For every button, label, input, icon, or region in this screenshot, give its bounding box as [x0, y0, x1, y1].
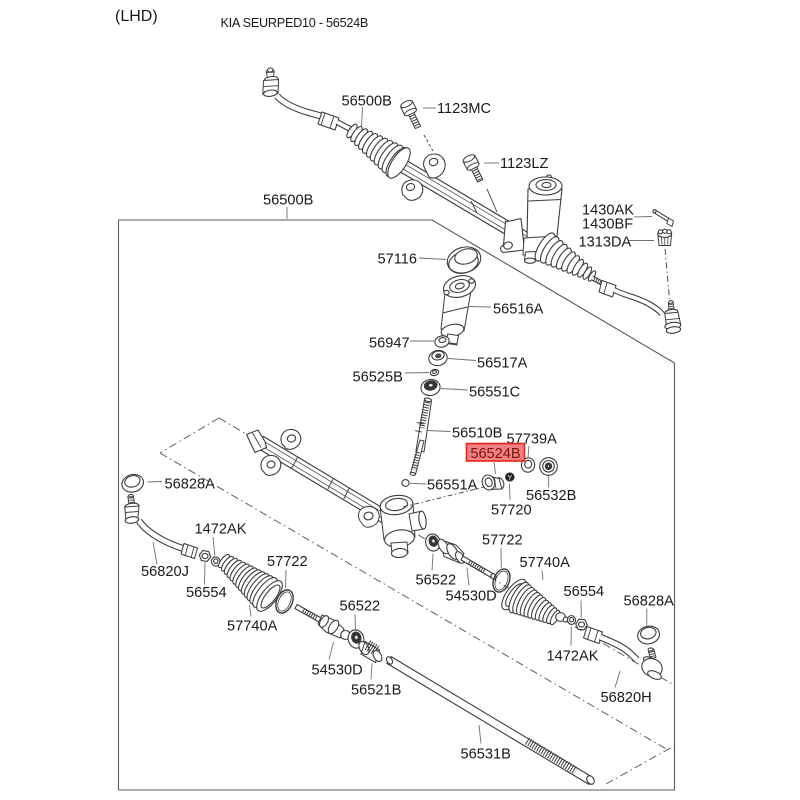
svg-text:57116: 57116 — [378, 252, 418, 268]
svg-text:57740A: 57740A — [227, 619, 278, 635]
svg-text:56524B: 56524B — [470, 446, 520, 462]
svg-text:56554: 56554 — [564, 584, 605, 600]
svg-text:57722: 57722 — [482, 533, 523, 549]
svg-text:1472AK: 1472AK — [195, 522, 247, 538]
svg-text:56522: 56522 — [416, 572, 457, 588]
svg-text:56510B: 56510B — [452, 426, 502, 442]
svg-text:56516A: 56516A — [493, 302, 544, 318]
svg-text:56828A: 56828A — [165, 477, 216, 493]
svg-text:1313DA: 1313DA — [579, 235, 632, 251]
svg-text:56525B: 56525B — [353, 370, 403, 386]
svg-text:56521B: 56521B — [351, 683, 401, 699]
svg-text:KIA SEURPED10 - 56524B: KIA SEURPED10 - 56524B — [221, 16, 369, 30]
svg-text:1123LZ: 1123LZ — [500, 156, 548, 172]
svg-text:56828A: 56828A — [624, 594, 675, 610]
svg-text:54530D: 54530D — [446, 588, 497, 604]
svg-text:1430BF: 1430BF — [582, 217, 633, 233]
svg-text:56554: 56554 — [186, 585, 227, 601]
svg-text:56947: 56947 — [369, 336, 410, 352]
svg-text:56500B: 56500B — [263, 193, 313, 209]
svg-text:54530D: 54530D — [312, 663, 363, 679]
svg-text:56522: 56522 — [340, 598, 381, 614]
svg-text:56551C: 56551C — [469, 385, 520, 401]
svg-text:56517A: 56517A — [477, 356, 528, 372]
svg-text:56820J: 56820J — [141, 564, 189, 580]
svg-text:57740A: 57740A — [520, 555, 571, 571]
svg-text:1123MC: 1123MC — [437, 101, 491, 117]
svg-text:56500B: 56500B — [342, 94, 392, 110]
svg-text:(LHD): (LHD) — [115, 8, 158, 25]
svg-text:57720: 57720 — [491, 503, 532, 519]
svg-text:56551A: 56551A — [427, 478, 478, 494]
svg-text:57722: 57722 — [267, 554, 308, 570]
svg-text:56532B: 56532B — [526, 488, 576, 504]
svg-text:56820H: 56820H — [601, 690, 652, 706]
svg-text:1472AK: 1472AK — [547, 649, 599, 665]
svg-text:56531B: 56531B — [461, 747, 511, 763]
